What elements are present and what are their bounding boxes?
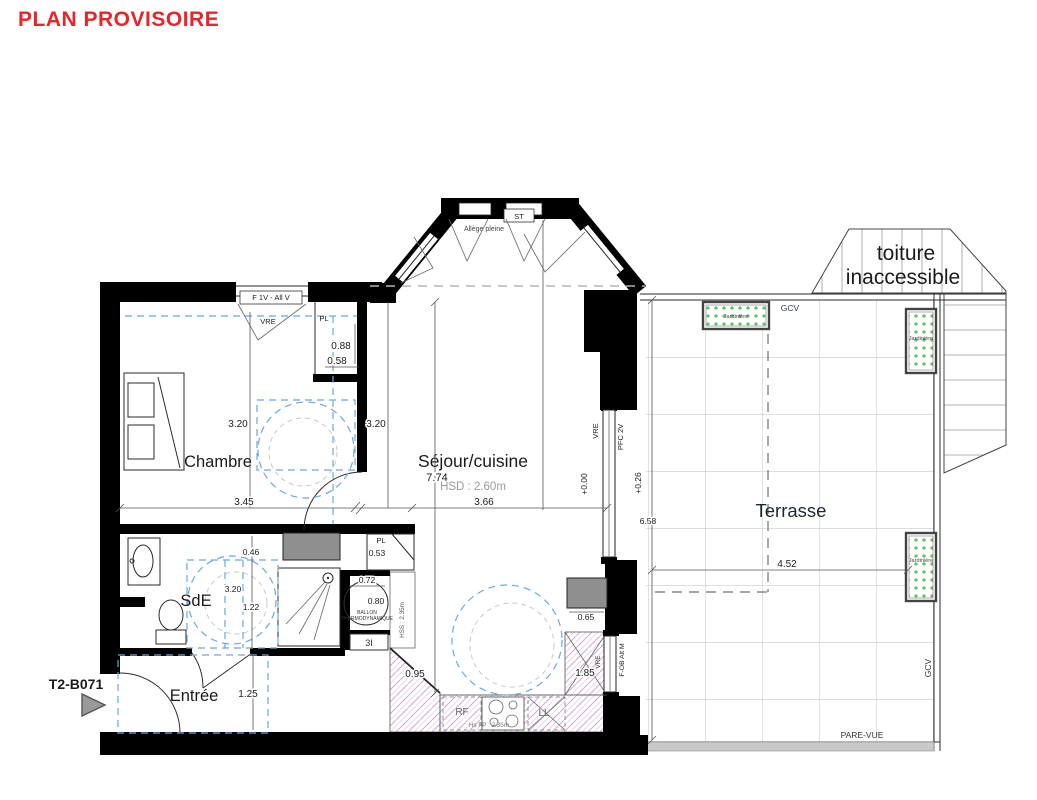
planter-right-upper: Jardinière xyxy=(906,309,936,373)
dim-terrace-depth: 6.58 xyxy=(640,516,657,526)
entrance-arrow-icon xyxy=(82,694,105,716)
kitchen-window-vre: VRE xyxy=(595,656,602,669)
dim-heater-072: 0.72 xyxy=(359,575,376,585)
unit-tag: T2-B071 xyxy=(49,676,105,716)
planter-right-upper-label: Jardinière xyxy=(909,336,934,342)
floor-plan-drawing: PARE-VUE Jardinière Jardinière Jardinièr… xyxy=(0,0,1037,800)
gcv-top-label: GCV xyxy=(781,303,800,313)
dim-living-320: 3.20 xyxy=(366,419,386,430)
bedroom-window: F 1V - All V VRE xyxy=(236,282,308,340)
level-terrace: +0.26 xyxy=(633,472,643,494)
bed xyxy=(124,373,184,470)
shower xyxy=(278,568,340,646)
dim-sde-122: 1.22 xyxy=(243,602,260,612)
duct-sde xyxy=(283,533,340,560)
bedroom-window-label: F 1V - All V xyxy=(252,293,290,302)
dim-sde-046: 0.46 xyxy=(243,547,260,557)
planter-top: Jardinière xyxy=(703,302,769,329)
terrasse-label: Terrasse xyxy=(756,500,827,521)
washing-machine-label: LL xyxy=(538,708,550,719)
planter-top-label: Jardinière xyxy=(724,314,749,320)
dim-duct-065: 0.65 xyxy=(578,612,595,622)
unit-code: T2-B071 xyxy=(49,676,104,692)
sde-label: SdE xyxy=(180,592,211,610)
electrical-box-label: 3I xyxy=(365,638,373,648)
kitchen-window-fob: F-OB Alt M xyxy=(619,643,626,677)
dim-entry-125: 1.25 xyxy=(238,689,258,700)
walls xyxy=(100,198,640,755)
roof-side-band xyxy=(944,293,1006,473)
dim-closet-088: 0.88 xyxy=(331,341,351,352)
dim-kitchen-095: 0.95 xyxy=(405,669,425,680)
toiture-label-1: toiture xyxy=(877,242,935,265)
dim-sde-320: 3.20 xyxy=(225,584,242,594)
level-zero: +0.00 xyxy=(579,473,589,495)
living-window: VRE PFC 2V +0.00 xyxy=(579,410,625,557)
fridge-label: RF xyxy=(455,707,468,718)
planter-right-lower-label: Jardinière xyxy=(909,558,934,564)
counter-height-label: Hs FP : 2.35m xyxy=(469,722,509,729)
living-window-vre: VRE xyxy=(591,423,600,438)
dim-terrace-width: 4.52 xyxy=(777,559,797,570)
dim-closet-058: 0.58 xyxy=(327,356,347,367)
electrical-box: 3I xyxy=(350,634,388,650)
dim-bedroom-345: 3.45 xyxy=(234,497,254,508)
water-heater-label-2: THERMODYNAMIQUE xyxy=(341,616,394,622)
hall-closet-label: PL xyxy=(376,536,385,545)
chambre-label: Chambre xyxy=(184,453,252,471)
terrace-tiles xyxy=(646,300,934,742)
turning-circle-living xyxy=(452,585,562,695)
sejour-label: Séjour/cuisine xyxy=(418,451,528,471)
duct-kitchen xyxy=(567,578,607,608)
dim-bedroom-320: 3.20 xyxy=(228,419,248,430)
dim-living-366: 3.66 xyxy=(474,497,494,508)
living-window-pfc: PFC 2V xyxy=(616,424,625,450)
dim-heater-080: 0.80 xyxy=(368,596,385,606)
bay-st-label: ST xyxy=(514,212,524,221)
turning-circle-bedroom xyxy=(258,402,354,498)
pare-vue-label: PARE-VUE xyxy=(841,730,884,740)
washbasin xyxy=(128,538,160,585)
dim-kitchen-185: 1.85 xyxy=(575,668,595,679)
windows: F 1V - All V VRE ST Allège pleine xyxy=(236,203,626,692)
bedroom-closet-label: PL xyxy=(319,314,328,323)
floor-plan-page: PLAN PROVISOIRE xyxy=(0,0,1037,800)
bedroom-window-vre: VRE xyxy=(260,317,275,326)
dim-closet-053: 0.53 xyxy=(369,548,386,558)
bathroom-door-leaf xyxy=(203,653,252,688)
bathroom-door xyxy=(192,653,203,688)
gcv-right-label: GCV xyxy=(923,658,933,677)
entree-label: Entrée xyxy=(170,687,219,705)
sejour-height-label: HSD : 2.60m xyxy=(440,481,506,493)
toiture-label-2: inaccessible xyxy=(846,266,960,289)
pare-vue-screen xyxy=(646,742,934,751)
hss-height-label: HSS : 2.35m xyxy=(399,602,406,638)
